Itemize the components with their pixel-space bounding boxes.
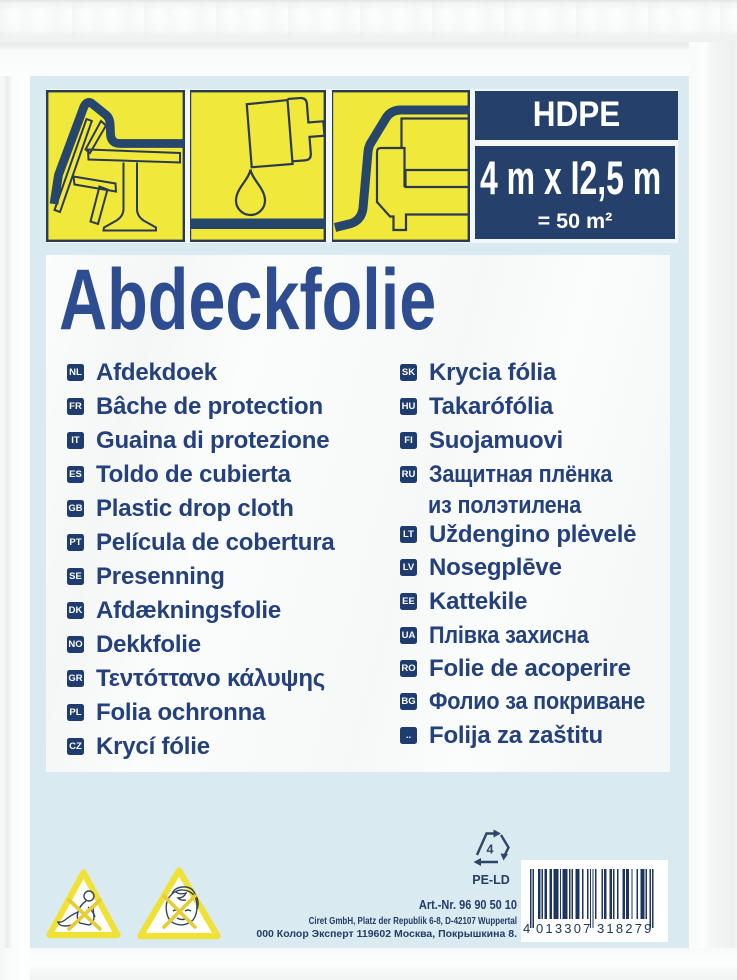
svg-text:4: 4 bbox=[487, 843, 494, 857]
